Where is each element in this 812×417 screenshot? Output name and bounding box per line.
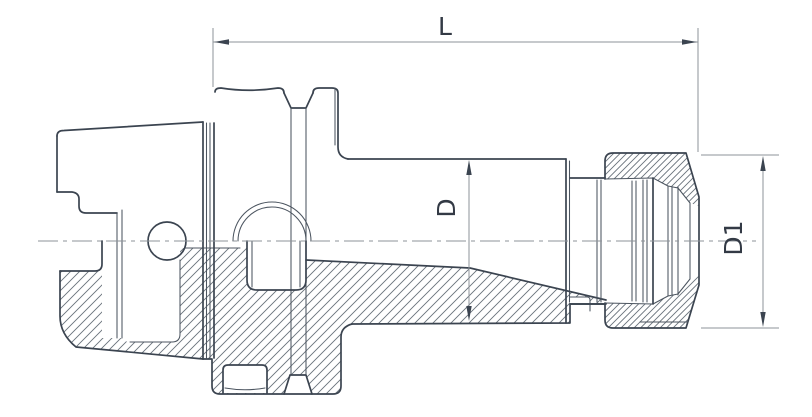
dimension-label-body-diameter: D (432, 198, 461, 217)
flange-ring1-top (215, 88, 284, 93)
nut-hatch-bottom (605, 276, 699, 328)
drawing-canvas: L D D1 (0, 0, 812, 417)
coolant-ball-arc-inner (238, 207, 306, 241)
flange-ring2-top (313, 88, 348, 159)
shank-top-edge (57, 122, 203, 136)
dimension-label-nut-diameter: D1 (719, 220, 748, 255)
arrowhead-up (466, 160, 471, 175)
tool-holder-technical-drawing: L D D1 (0, 0, 812, 417)
arrowhead-down (760, 312, 765, 327)
flange-cavity (247, 241, 306, 290)
arrowhead-right (682, 39, 697, 44)
nut-hatch-top (605, 153, 699, 206)
grip-groove-top-profile (57, 192, 117, 213)
v-groove-profile (284, 93, 313, 108)
grip-groove-recess (60, 241, 102, 271)
shank-hollow-bore (102, 241, 122, 338)
arrowhead-left (214, 39, 229, 44)
dimension-label-length: L (438, 12, 452, 41)
dimension-L: L (213, 12, 698, 152)
arrowhead-up (760, 156, 765, 171)
shank-hollow-cavity (122, 241, 180, 342)
